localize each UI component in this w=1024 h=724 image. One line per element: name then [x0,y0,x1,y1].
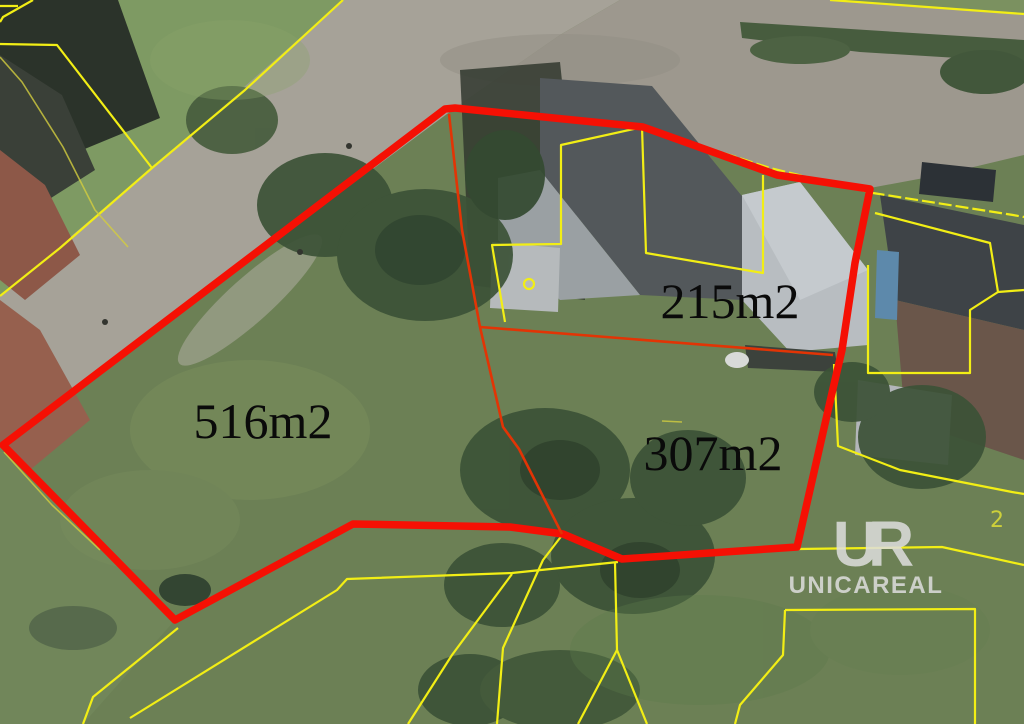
tree-core [600,542,680,598]
pedestrian-dot [346,143,352,149]
parcel-area-label-516: 516m2 [194,393,333,449]
yellow-cadastral-line [662,421,682,422]
pool-blue [875,250,899,320]
stray-parcel-digit: 2 [990,508,1004,533]
tree-core [520,440,600,500]
tree-core [375,215,465,285]
aerial-photo-layer [0,0,1024,724]
white-car [725,352,749,368]
tree [465,130,545,220]
watermark-monogram: UR [833,508,913,580]
map-canvas: 516m2 215m2 307m2 2 UR UNICAREAL [0,0,1024,724]
parcel-area-label-307: 307m2 [644,425,783,481]
pedestrian-dot [102,319,108,325]
cadastral-aerial-map: 516m2 215m2 307m2 2 UR UNICAREAL [0,0,1024,724]
pedestrian-dot [297,249,303,255]
hedge-bush [750,36,850,64]
watermark-brand: UNICAREAL [789,572,944,599]
tree [444,543,560,627]
tree [29,606,117,650]
parcel-area-label-215: 215m2 [661,273,800,329]
